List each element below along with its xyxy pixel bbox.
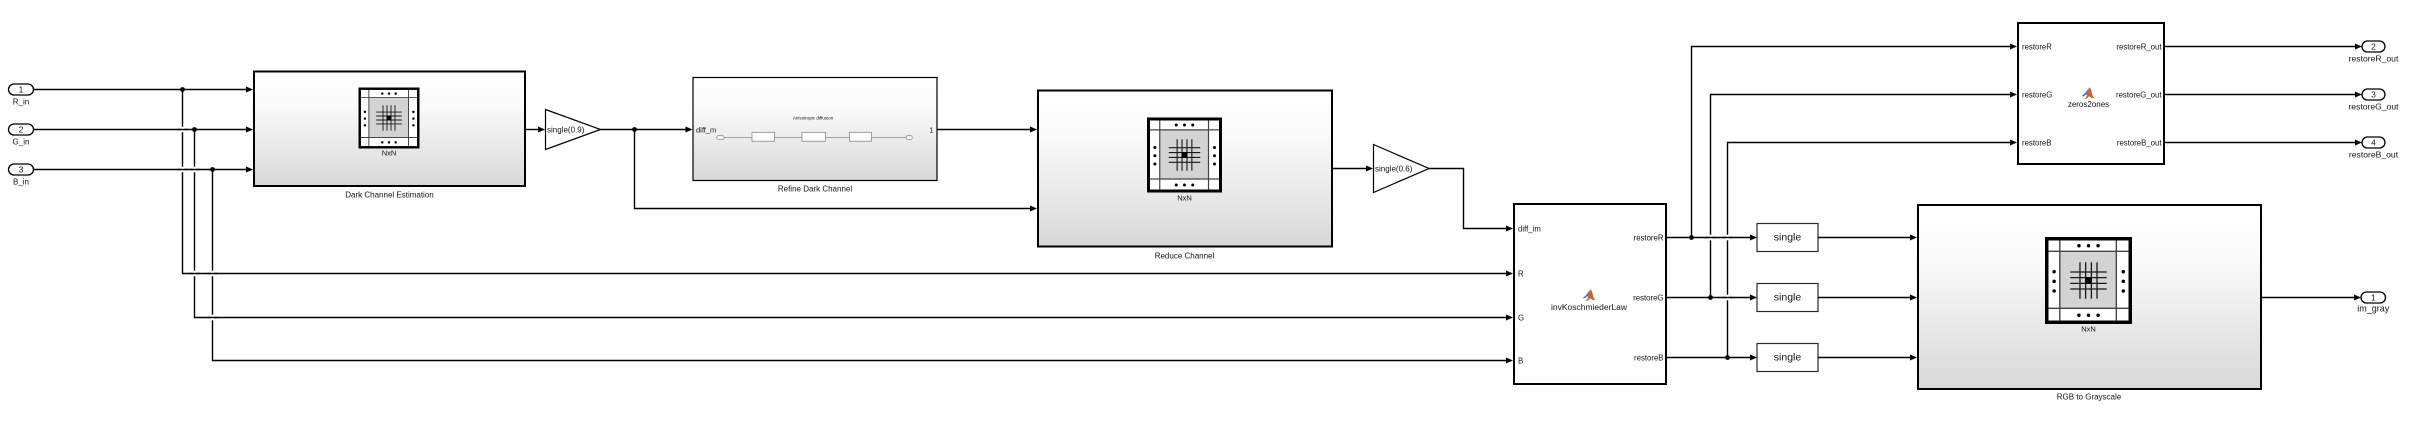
svg-text:R: R bbox=[1518, 270, 1524, 279]
svg-text:restoreB_out: restoreB_out bbox=[2117, 139, 2162, 148]
svg-text:1: 1 bbox=[2371, 293, 2376, 303]
svg-text:Reduce Channel: Reduce Channel bbox=[1155, 252, 1215, 261]
svg-text:restoreG: restoreG bbox=[1633, 294, 1663, 303]
svg-text:2: 2 bbox=[2371, 42, 2376, 52]
svg-text:restoreR: restoreR bbox=[2022, 43, 2052, 52]
svg-text:2: 2 bbox=[19, 125, 24, 135]
svg-text:Anisotropic diffusion: Anisotropic diffusion bbox=[793, 116, 834, 121]
svg-text:NxN: NxN bbox=[1177, 194, 1192, 203]
svg-text:restoreR: restoreR bbox=[1634, 234, 1664, 243]
svg-text:im_gray: im_gray bbox=[2357, 304, 2390, 314]
svg-text:1: 1 bbox=[929, 126, 933, 135]
svg-text:invKoschmiederLaw: invKoschmiederLaw bbox=[1551, 302, 1628, 312]
svg-text:restoreG_out: restoreG_out bbox=[2116, 91, 2162, 100]
svg-text:restoreB: restoreB bbox=[2022, 139, 2051, 148]
svg-text:single(0.9): single(0.9) bbox=[547, 125, 585, 134]
svg-text:diff_im: diff_im bbox=[1518, 225, 1541, 234]
svg-text:diff_m: diff_m bbox=[696, 126, 716, 135]
svg-text:restoreG: restoreG bbox=[2022, 91, 2052, 100]
svg-text:restoreR_out: restoreR_out bbox=[2116, 43, 2162, 52]
svg-text:G: G bbox=[1518, 314, 1524, 323]
svg-text:single: single bbox=[1774, 231, 1802, 243]
svg-text:3: 3 bbox=[2371, 90, 2376, 100]
svg-text:single: single bbox=[1774, 291, 1802, 303]
svg-text:restoreB_out: restoreB_out bbox=[2349, 149, 2399, 159]
svg-text:1: 1 bbox=[19, 85, 24, 95]
svg-text:restoreG_out: restoreG_out bbox=[2348, 101, 2399, 111]
svg-text:single: single bbox=[1774, 351, 1802, 363]
svg-text:NxN: NxN bbox=[2081, 325, 2096, 334]
svg-text:Refine Dark Channel: Refine Dark Channel bbox=[778, 185, 852, 194]
svg-text:RGB to Grayscale: RGB to Grayscale bbox=[2057, 393, 2122, 402]
svg-text:restoreR_out: restoreR_out bbox=[2349, 53, 2399, 63]
svg-text:NxN: NxN bbox=[382, 149, 397, 158]
svg-text:3: 3 bbox=[19, 165, 24, 175]
svg-text:B_in: B_in bbox=[13, 178, 29, 187]
svg-text:zeros2ones: zeros2ones bbox=[2068, 100, 2109, 109]
svg-text:single(0.6): single(0.6) bbox=[1375, 164, 1413, 173]
svg-text:restoreB: restoreB bbox=[1634, 354, 1663, 363]
svg-text:G_in: G_in bbox=[13, 138, 30, 147]
svg-text:B: B bbox=[1518, 357, 1523, 366]
svg-text:R_in: R_in bbox=[13, 98, 29, 107]
svg-text:Dark Channel Estimation: Dark Channel Estimation bbox=[345, 191, 433, 200]
svg-text:4: 4 bbox=[2371, 138, 2376, 148]
